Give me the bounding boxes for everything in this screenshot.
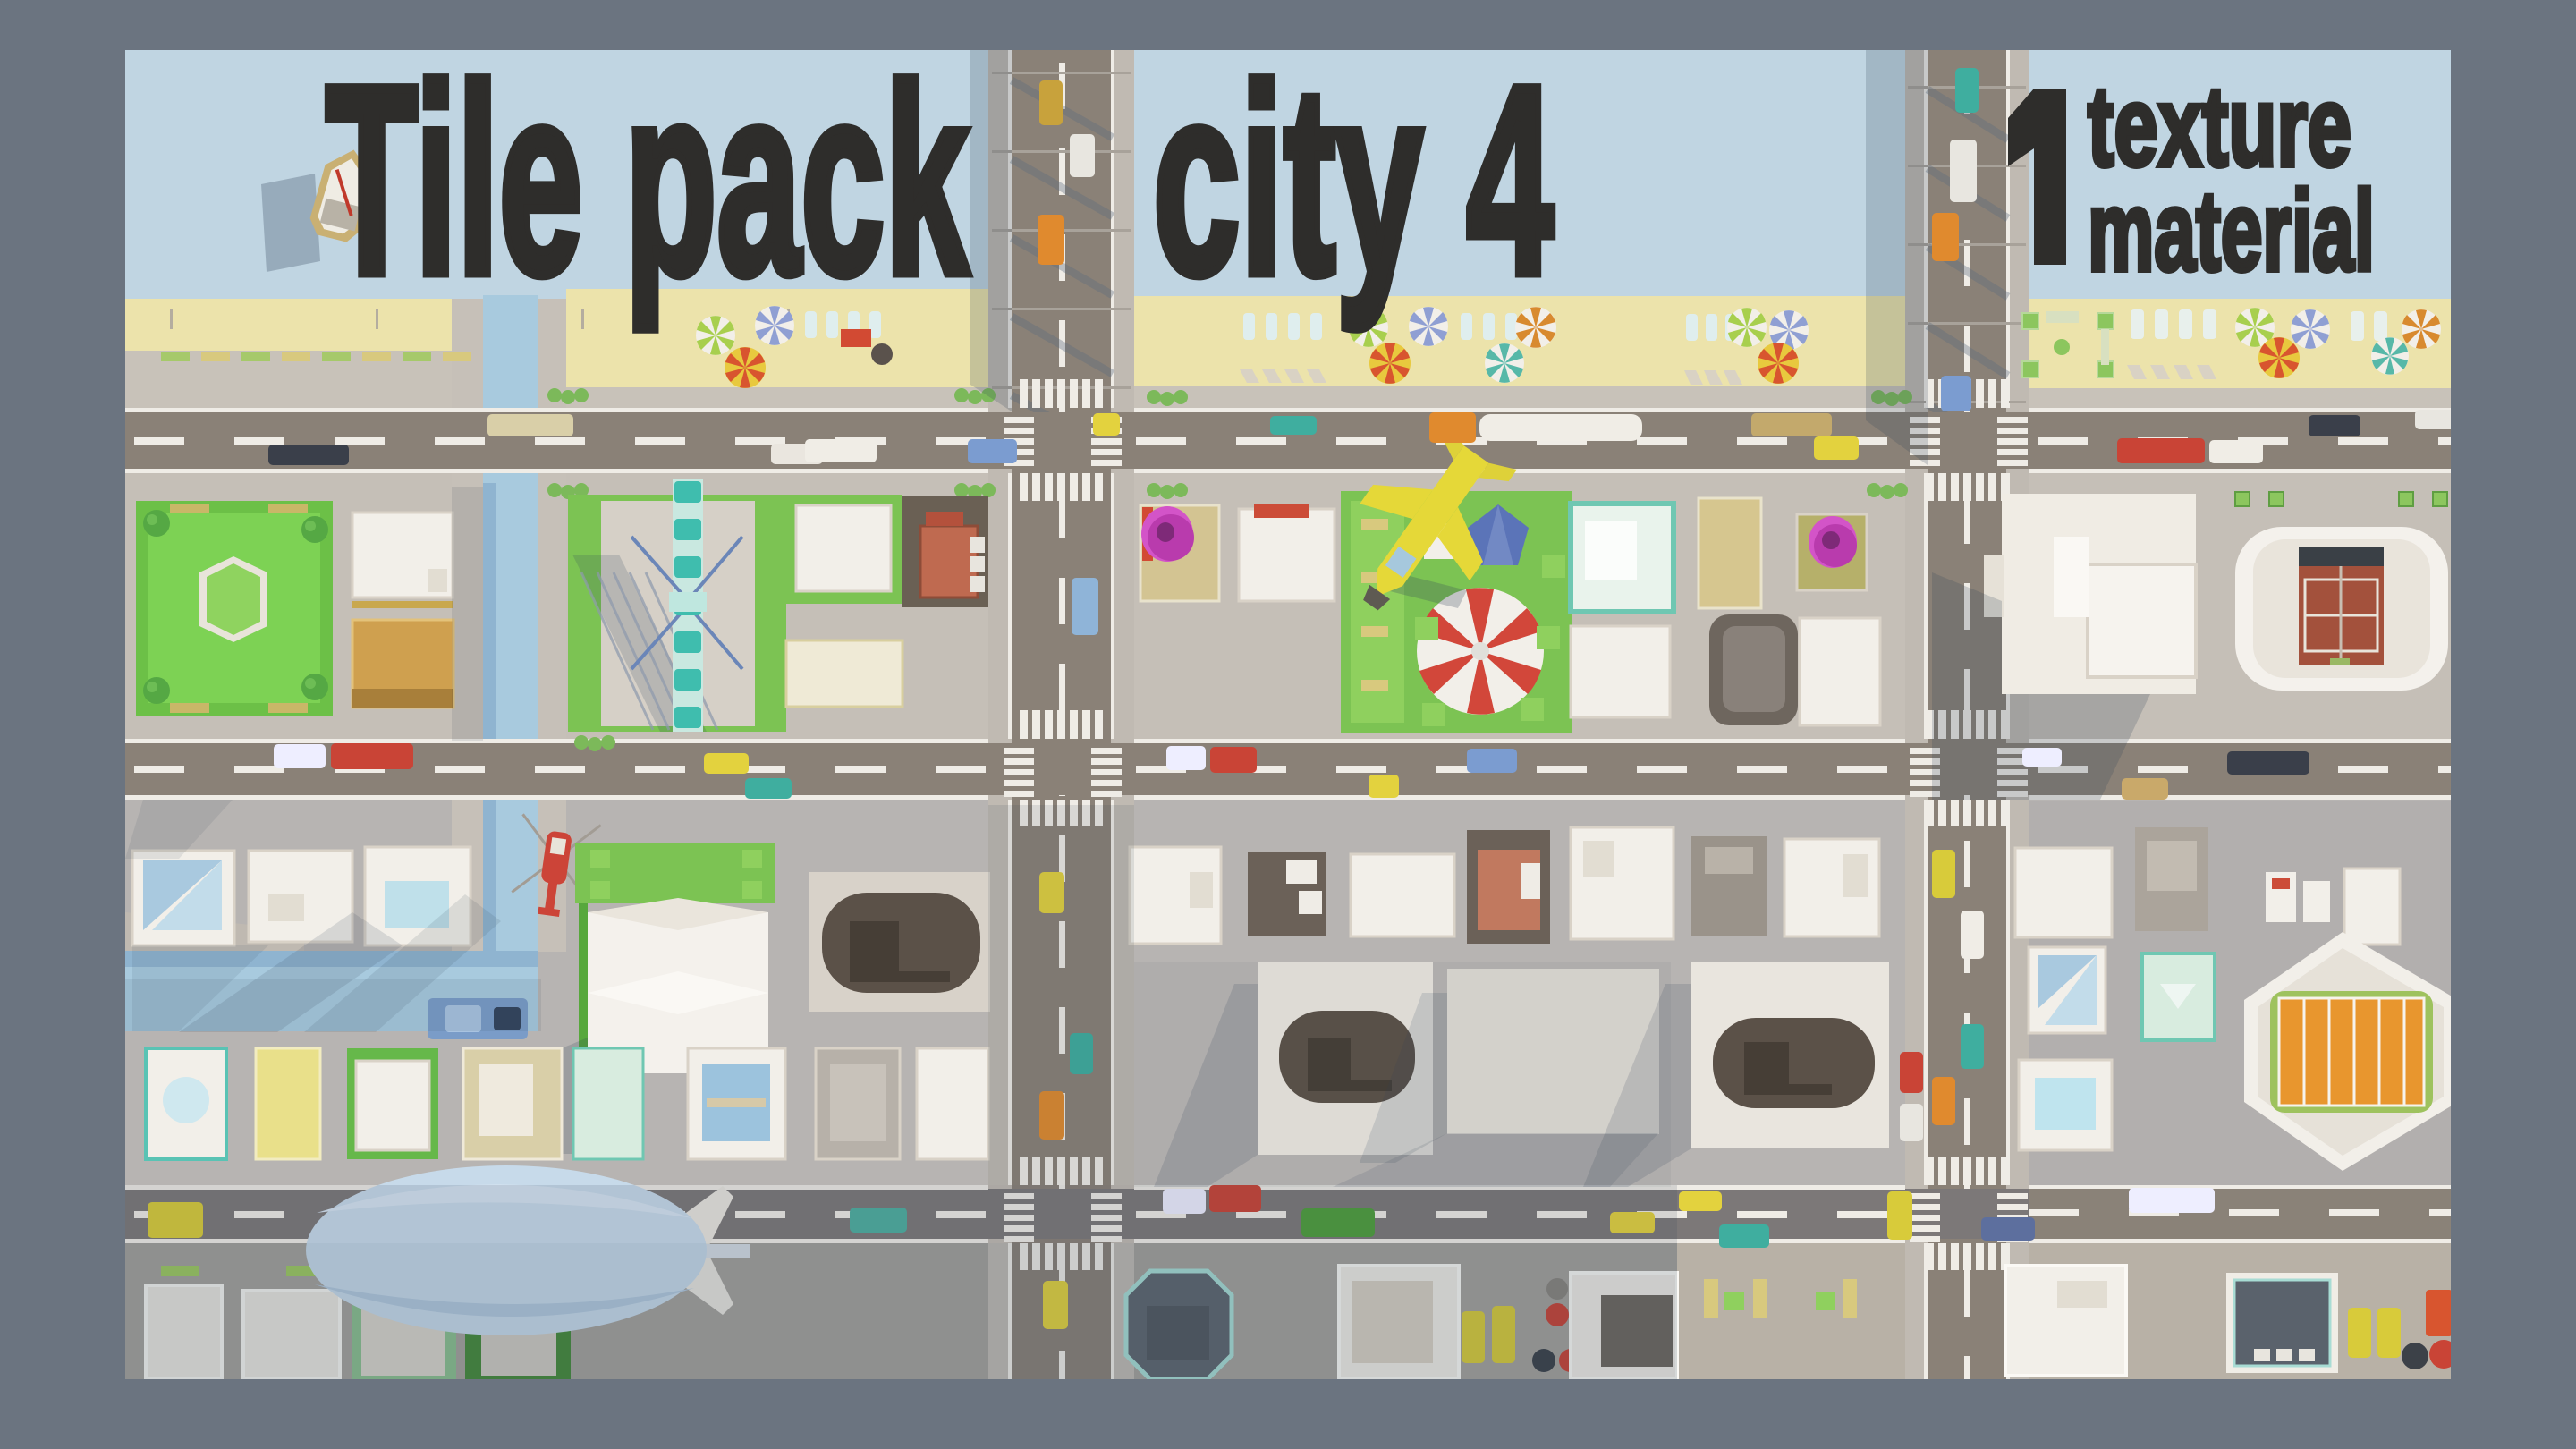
svg-text:material: material — [2088, 167, 2375, 294]
svg-text:city 4: city 4 — [1153, 30, 1555, 332]
svg-text:Tile pack: Tile pack — [326, 30, 970, 332]
